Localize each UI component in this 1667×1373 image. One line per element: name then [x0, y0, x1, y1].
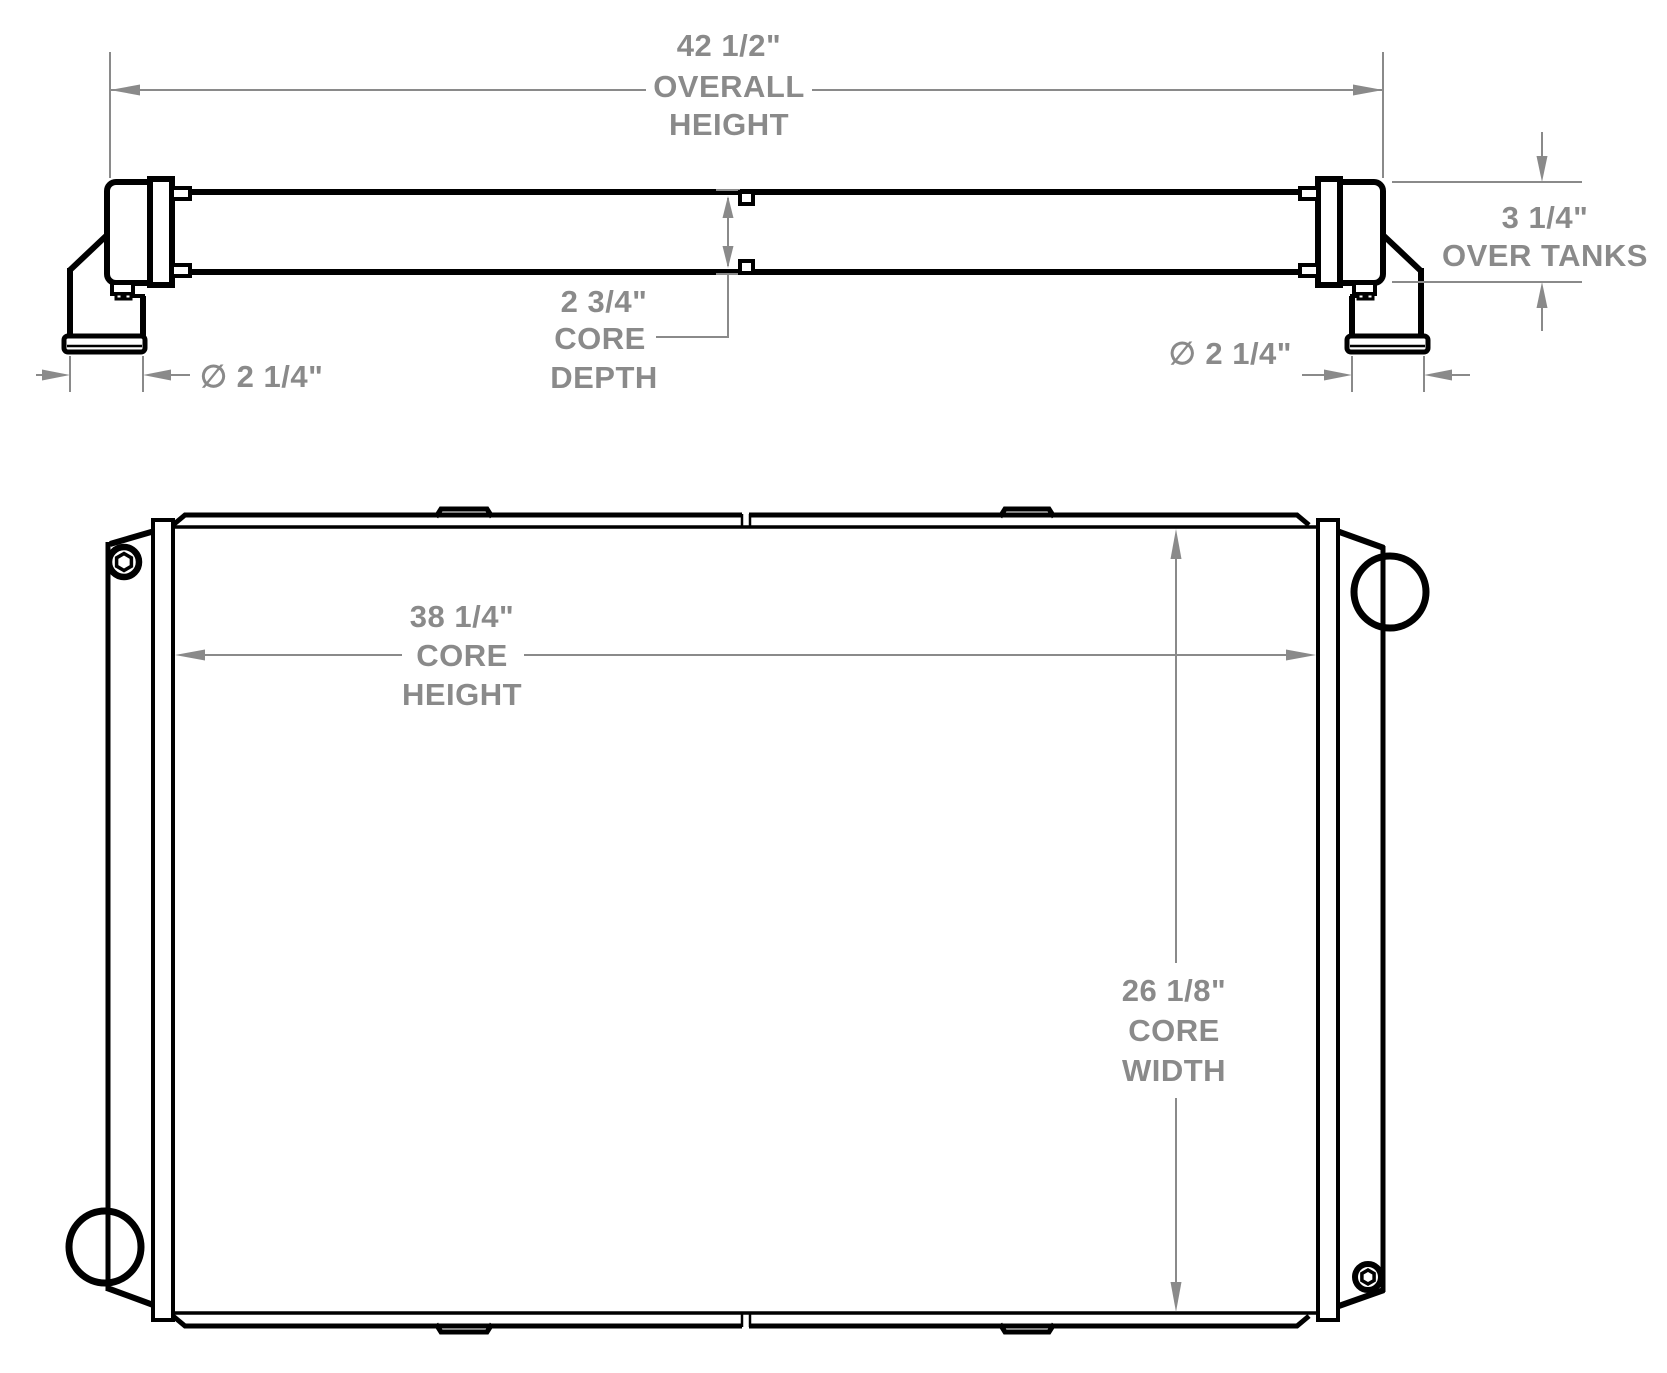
overall-height-label-2: HEIGHT — [669, 107, 789, 142]
left-pipe-elbow-outer — [69, 236, 106, 271]
arrowhead-left — [110, 85, 140, 96]
core-width-label-2: WIDTH — [1122, 1053, 1226, 1088]
arrowhead-left-pointing — [143, 370, 171, 381]
right-flange-strip — [1318, 520, 1338, 1320]
right-tank-bottom-slant — [1336, 1290, 1384, 1307]
arrowhead-left — [175, 650, 205, 661]
arrowhead-right — [1353, 85, 1383, 96]
right-bottom-tab — [1300, 265, 1318, 276]
arrowhead-down — [1537, 156, 1548, 182]
core-height-label-1: CORE — [416, 638, 508, 673]
core-width-value: 26 1/8" — [1122, 973, 1226, 1008]
dim-core-width: 26 1/8" CORE WIDTH — [1122, 529, 1226, 1312]
drawing-svg: 42 1/2" OVERALL HEIGHT 2 3/4" CORE DEPTH… — [0, 0, 1667, 1373]
plug-hex — [117, 554, 132, 571]
left-tank-top-slant — [110, 530, 158, 544]
core-depth-label-1: CORE — [554, 321, 646, 356]
core-depth-leader — [656, 274, 728, 337]
bottom-left-pipe-opening — [69, 1211, 141, 1283]
dim-core-height: 38 1/4" CORE HEIGHT — [175, 599, 1316, 712]
left-top-tab — [172, 188, 190, 199]
plug-hex — [1362, 1270, 1374, 1284]
arrowhead-up — [1537, 282, 1548, 308]
right-mount-bracket — [1354, 283, 1375, 294]
left-pipe-bead — [64, 336, 145, 352]
left-bracket-tooth-2 — [125, 294, 131, 299]
left-mount-bracket — [112, 283, 133, 294]
seam-clip-rear — [740, 261, 753, 273]
arrowhead-right-pointing — [42, 370, 70, 381]
left-tank-bottom-slant — [107, 1288, 156, 1306]
top-view: 42 1/2" OVERALL HEIGHT 2 3/4" CORE DEPTH… — [36, 28, 1648, 395]
left-bracket-tooth-1 — [116, 294, 122, 299]
pipe-opening-ring — [1354, 556, 1426, 628]
core-height-value: 38 1/4" — [410, 599, 514, 634]
overall-height-value: 42 1/2" — [677, 28, 781, 63]
right-tank-top-slant — [1334, 530, 1384, 548]
radiator-top-profile — [64, 179, 1428, 352]
core-height-label-2: HEIGHT — [402, 677, 522, 712]
left-flange-strip — [153, 520, 173, 1320]
right-pipe-elbow-outer — [1384, 236, 1421, 271]
arrowhead-down — [723, 246, 734, 268]
right-pipe-bead — [1347, 336, 1428, 352]
radiator-front-profile — [69, 509, 1426, 1332]
arrowhead-right-pointing — [1324, 370, 1352, 381]
arrowhead-left-pointing — [1424, 370, 1452, 381]
overall-height-label-1: OVERALL — [653, 69, 805, 104]
left-header-flange — [150, 179, 172, 285]
core-depth-label-2: DEPTH — [550, 360, 658, 395]
right-bracket-tooth-1 — [1358, 294, 1364, 299]
right-bracket-tooth-2 — [1367, 294, 1373, 299]
top-right-pipe-opening — [1354, 556, 1426, 628]
over-tanks-label: OVER TANKS — [1442, 238, 1648, 273]
dim-over-tanks: 3 1/4" OVER TANKS — [1392, 132, 1648, 331]
right-top-tab — [1300, 188, 1318, 199]
left-bottom-tab — [172, 265, 190, 276]
seam-clip-front — [740, 192, 753, 204]
dim-overall-height: 42 1/2" OVERALL HEIGHT — [110, 28, 1383, 178]
arrowhead-right — [1286, 650, 1316, 661]
arrowhead-up — [1171, 529, 1182, 559]
pipe-opening-ring — [69, 1211, 141, 1283]
arrowhead-down — [1171, 1282, 1182, 1312]
bottom-right-plug — [1355, 1264, 1381, 1290]
pipe-diameter-right-value: ∅ 2 1/4" — [1169, 336, 1292, 371]
over-tanks-value: 3 1/4" — [1502, 200, 1589, 235]
front-view: 38 1/4" CORE HEIGHT 26 1/8" CORE WIDTH — [69, 509, 1426, 1332]
top-left-plug — [109, 547, 139, 577]
right-header-flange — [1318, 179, 1340, 285]
core-depth-value: 2 3/4" — [561, 284, 648, 319]
pipe-diameter-left-value: ∅ 2 1/4" — [200, 359, 323, 394]
dim-core-depth: 2 3/4" CORE DEPTH — [550, 196, 733, 395]
dim-pipe-left: ∅ 2 1/4" — [36, 356, 323, 394]
core-width-label-1: CORE — [1128, 1013, 1220, 1048]
arrowhead-up — [723, 196, 734, 218]
radiator-technical-drawing: 42 1/2" OVERALL HEIGHT 2 3/4" CORE DEPTH… — [0, 0, 1667, 1373]
